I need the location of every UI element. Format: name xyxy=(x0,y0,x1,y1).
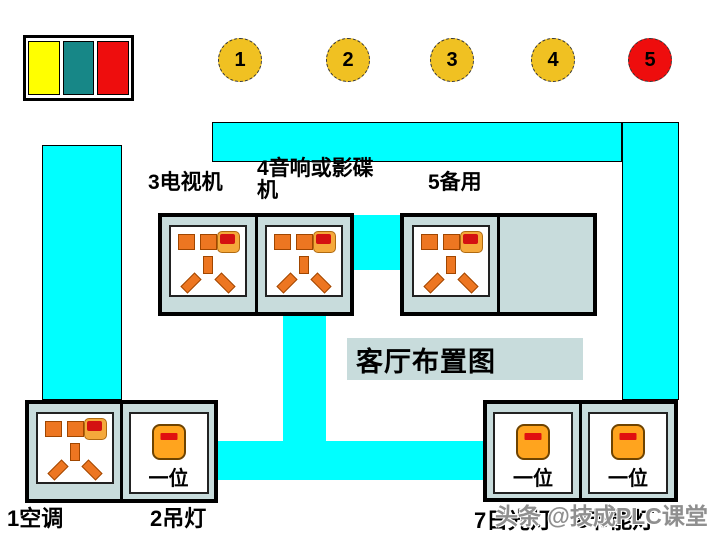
socket-slot xyxy=(276,272,297,293)
socket-slot xyxy=(181,272,202,293)
diagram-title: 客厅布置图 xyxy=(347,340,496,379)
label-audio: 4音响或影碟机 xyxy=(257,158,379,202)
legend-yellow-swatch xyxy=(28,41,60,95)
switch-face-energy: 一位 xyxy=(588,412,668,494)
socket-slot xyxy=(203,256,213,274)
duct-top-connector xyxy=(352,215,402,270)
outlet-group-aircon-chandelier: 一位 xyxy=(25,400,218,503)
duct-middle-vertical xyxy=(283,314,326,442)
switch-button xyxy=(152,424,186,460)
switch-panel-energy: 一位 xyxy=(579,404,674,498)
socket-face-aircon xyxy=(36,412,114,484)
circuit-marker-4: 4 xyxy=(531,38,575,82)
socket-slot xyxy=(457,272,478,293)
label-chandelier: 2吊灯 xyxy=(150,507,206,530)
outlet-group-spare xyxy=(400,213,597,316)
socket-slot xyxy=(178,234,195,250)
socket-slot xyxy=(47,459,68,480)
switch-face-chandelier: 一位 xyxy=(129,412,209,494)
socket-face-spare xyxy=(412,225,490,297)
socket-slot xyxy=(215,272,236,293)
socket-slot xyxy=(421,234,438,250)
socket-indicator xyxy=(460,231,483,253)
duct-top-horizontal xyxy=(212,122,622,162)
socket-slot xyxy=(299,256,309,274)
switch-label: 一位 xyxy=(495,469,571,489)
legend-red-swatch xyxy=(97,41,129,95)
socket-slot xyxy=(67,421,84,437)
circuit-marker-5: 5 xyxy=(628,38,672,82)
circuit-marker-1: 1 xyxy=(218,38,262,82)
living-room-layout-diagram: 1 2 3 4 5 xyxy=(0,0,720,540)
socket-face-audio xyxy=(265,225,343,297)
socket-slot xyxy=(81,459,102,480)
socket-slot xyxy=(423,272,444,293)
socket-panel-audio xyxy=(255,217,351,312)
label-tv: 3电视机 xyxy=(148,172,223,194)
switch-panel-fluorescent: 一位 xyxy=(487,404,579,498)
socket-indicator xyxy=(313,231,336,253)
socket-slot xyxy=(310,272,331,293)
switch-face-fluorescent: 一位 xyxy=(493,412,573,494)
socket-slot xyxy=(45,421,62,437)
switch-button xyxy=(516,424,550,460)
switch-label: 一位 xyxy=(131,469,207,489)
socket-slot xyxy=(296,234,313,250)
duct-left-vertical xyxy=(42,145,122,400)
socket-slot xyxy=(70,443,80,461)
switch-button xyxy=(611,424,645,460)
socket-indicator xyxy=(217,231,240,253)
circuit-marker-2: 2 xyxy=(326,38,370,82)
duct-right-vertical xyxy=(622,122,679,400)
label-spare: 5备用 xyxy=(428,172,482,194)
socket-panel-spare xyxy=(404,217,497,312)
color-legend xyxy=(23,35,134,101)
socket-slot xyxy=(443,234,460,250)
socket-panel-tv xyxy=(162,217,255,312)
socket-panel-aircon xyxy=(29,404,120,499)
duct-bottom-horizontal xyxy=(218,441,483,480)
socket-slot xyxy=(274,234,291,250)
switch-label: 一位 xyxy=(590,469,666,489)
outlet-group-tv-audio xyxy=(158,213,354,316)
blank-panel xyxy=(497,217,593,312)
legend-teal-swatch xyxy=(63,41,95,95)
diagram-title-box: 客厅布置图 xyxy=(347,338,583,380)
socket-slot xyxy=(446,256,456,274)
circuit-marker-3: 3 xyxy=(430,38,474,82)
socket-face-tv xyxy=(169,225,247,297)
socket-slot xyxy=(200,234,217,250)
socket-indicator xyxy=(84,418,107,440)
outlet-group-lights: 一位 一位 xyxy=(483,400,678,502)
watermark-text: 头条 @技成PLC课堂 xyxy=(495,497,708,531)
label-aircon: 1空调 xyxy=(7,507,63,530)
switch-panel-chandelier: 一位 xyxy=(120,404,214,499)
